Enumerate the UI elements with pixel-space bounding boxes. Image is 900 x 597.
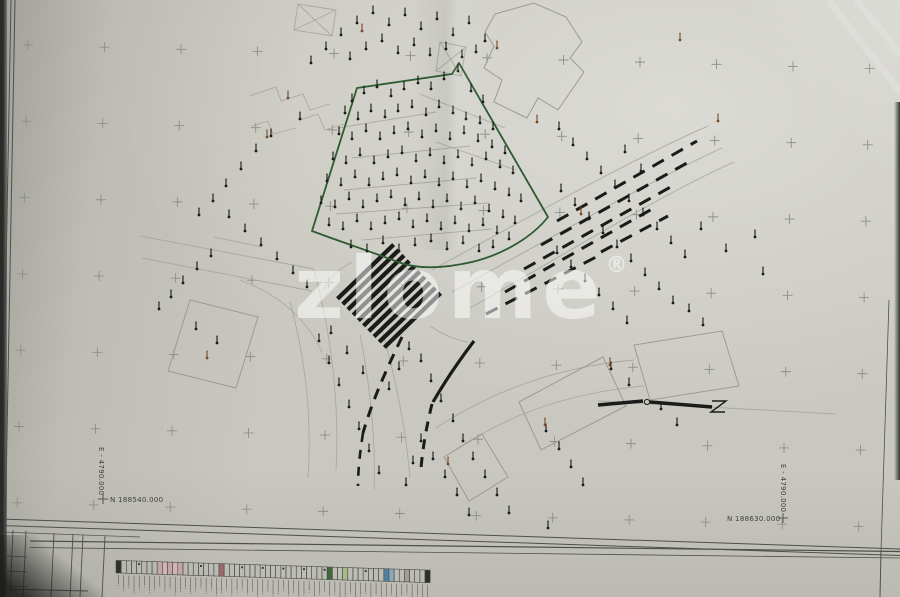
survey-boundary	[312, 63, 548, 267]
coordinate-label: N 188630.000	[727, 515, 780, 523]
bold-road-marks	[358, 337, 474, 486]
coordinate-label: N 188540.000	[110, 496, 163, 504]
coordinate-label: E - 4790.000	[97, 447, 105, 495]
site-plan-drawing: zlome®E - 4790.000N 188540.000E - 4790.0…	[0, 0, 900, 597]
watermark-text: zlome®	[294, 239, 633, 339]
paper-wrinkles	[828, 0, 900, 92]
coordinate-labels: E - 4790.000N 188540.000E - 4790.000N 18…	[97, 447, 788, 523]
legend-strip	[116, 561, 430, 597]
coordinate-label: E - 4790.000	[779, 464, 787, 512]
watermark: zlome®	[294, 239, 633, 339]
photo-of-plan: zlome®E - 4790.000N 188540.000E - 4790.0…	[0, 0, 900, 597]
